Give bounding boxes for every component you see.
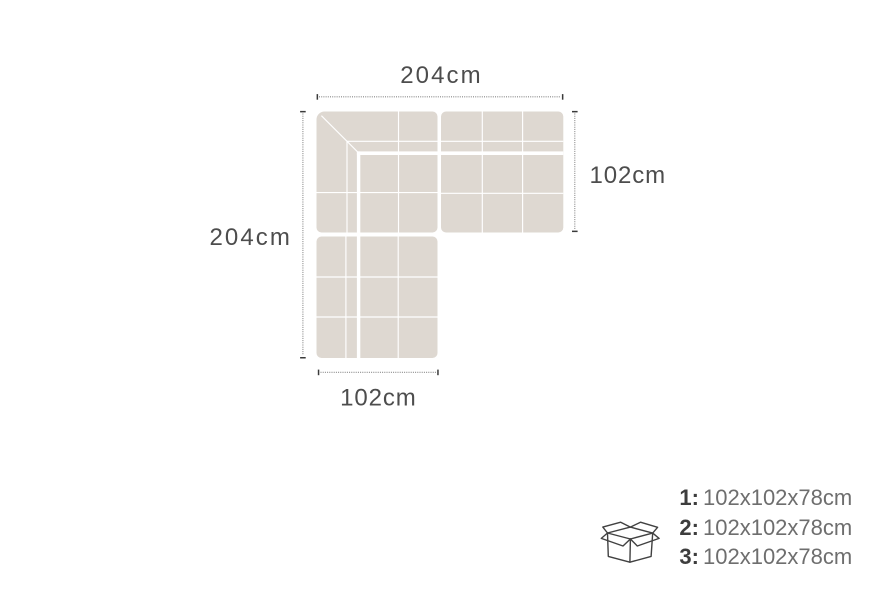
- svg-text:204cm: 204cm: [209, 224, 292, 251]
- svg-text:102cm: 102cm: [590, 162, 667, 189]
- svg-text:3:: 3:: [679, 544, 699, 569]
- svg-text:102x102x78cm: 102x102x78cm: [703, 515, 852, 540]
- svg-text:2:: 2:: [679, 515, 699, 540]
- svg-text:102x102x78cm: 102x102x78cm: [703, 485, 852, 510]
- svg-text:1:: 1:: [679, 485, 699, 510]
- svg-text:102cm: 102cm: [340, 384, 417, 411]
- svg-text:204cm: 204cm: [400, 62, 483, 89]
- svg-text:102x102x78cm: 102x102x78cm: [703, 544, 852, 569]
